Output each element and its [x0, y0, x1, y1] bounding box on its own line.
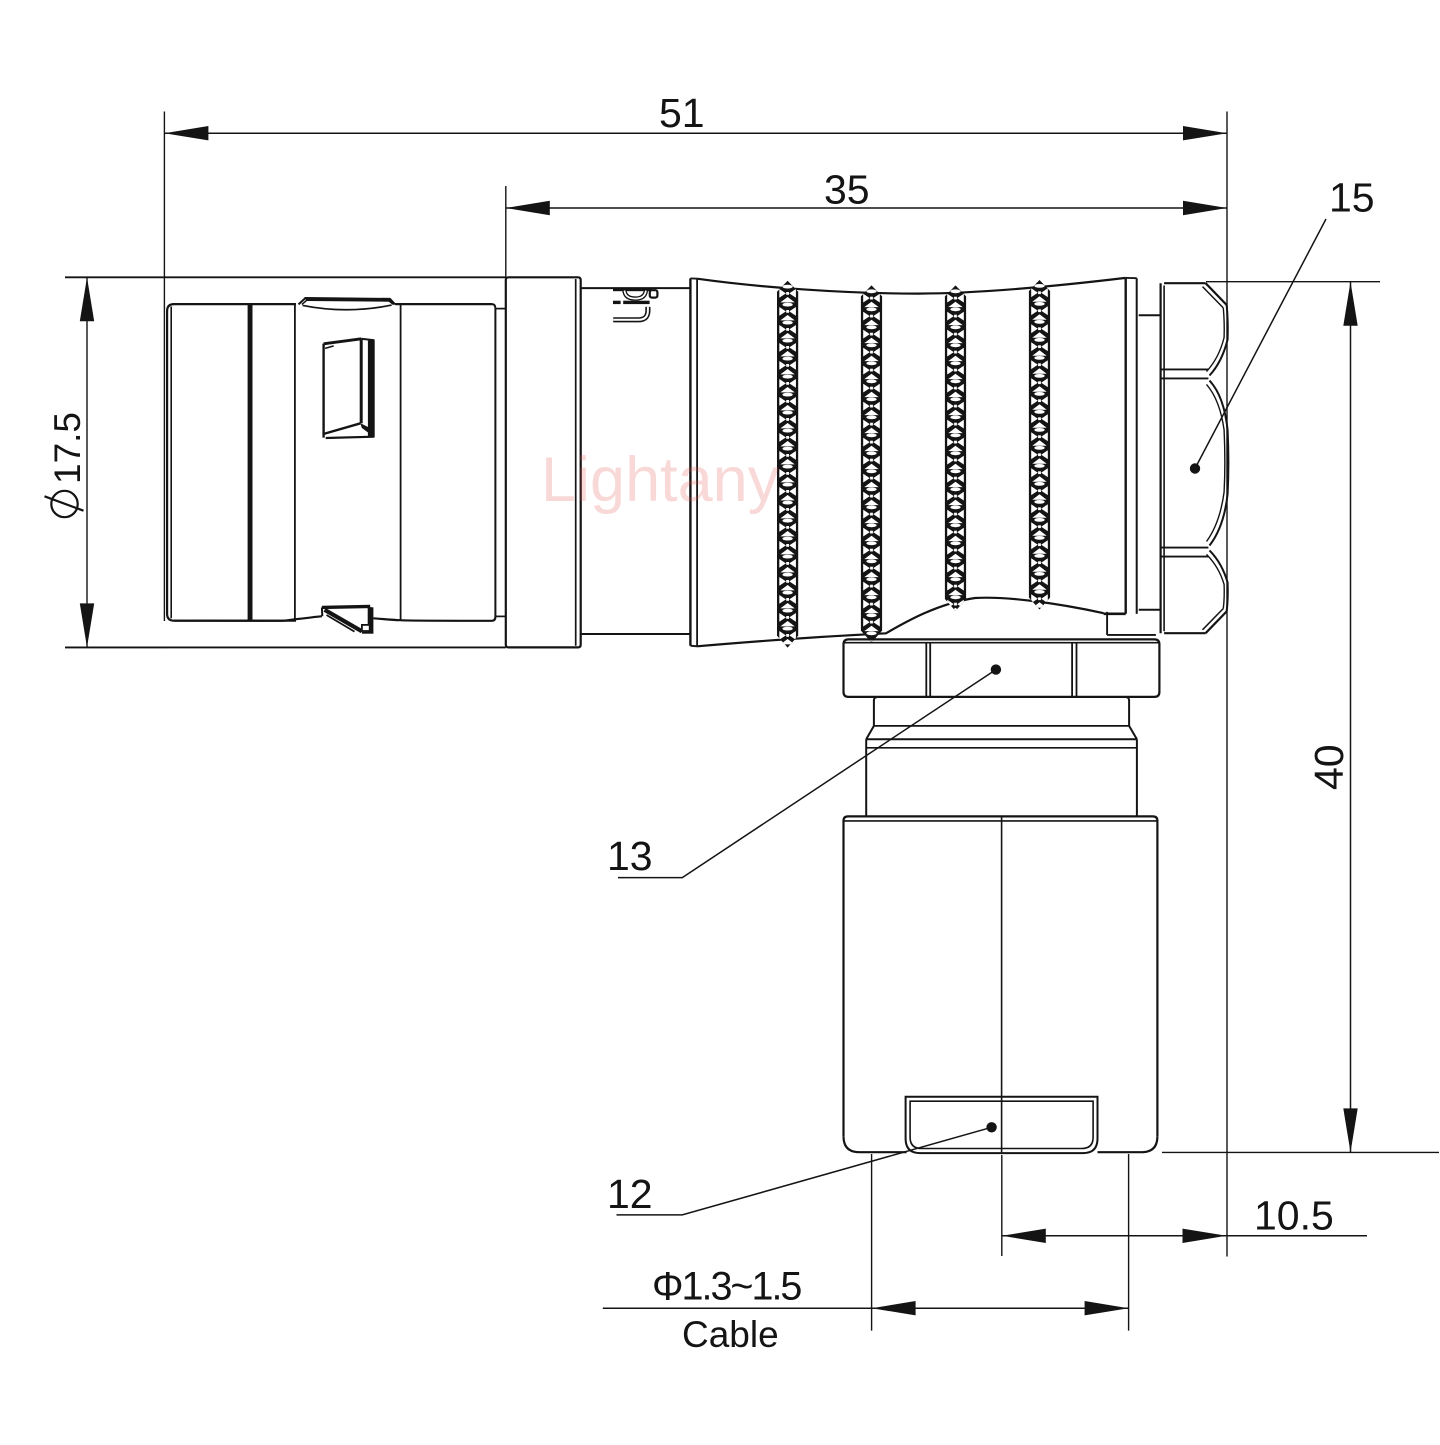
svg-text:13: 13	[607, 833, 653, 879]
svg-text:35: 35	[824, 167, 870, 213]
svg-text:Lightany: Lightany	[541, 445, 780, 515]
svg-text:40: 40	[1306, 744, 1352, 790]
svg-text:15: 15	[1329, 174, 1375, 220]
svg-text:Cable: Cable	[682, 1314, 779, 1355]
svg-text:17.5: 17.5	[47, 412, 88, 484]
svg-text:51: 51	[659, 90, 705, 136]
svg-text:10.5: 10.5	[1254, 1193, 1334, 1239]
svg-text:12: 12	[607, 1171, 653, 1217]
svg-text:Φ1.3~1.5: Φ1.3~1.5	[652, 1265, 801, 1309]
